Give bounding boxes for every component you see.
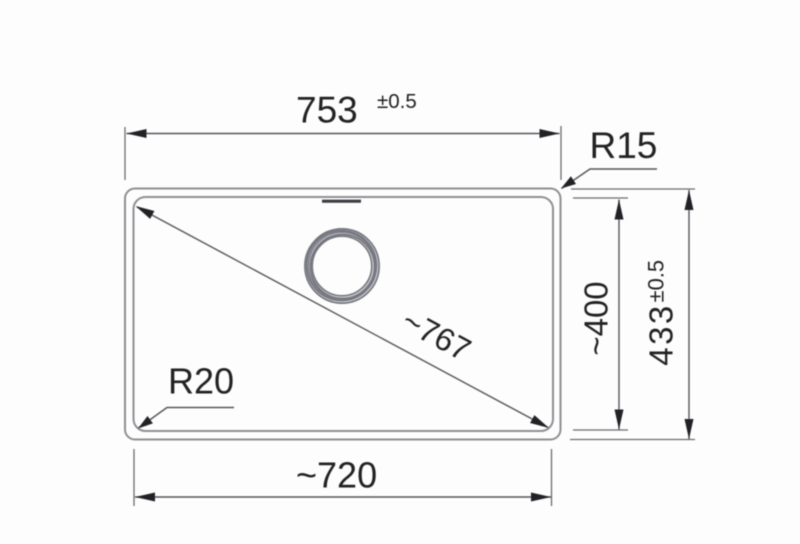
svg-text:433: 433 xyxy=(643,303,680,366)
svg-text:~767: ~767 xyxy=(396,302,477,368)
svg-text:~400: ~400 xyxy=(578,281,615,355)
svg-text:R20: R20 xyxy=(168,361,234,402)
svg-text:±0.5: ±0.5 xyxy=(644,260,669,303)
svg-text:±0.5: ±0.5 xyxy=(377,90,417,113)
svg-text:R15: R15 xyxy=(590,125,658,166)
svg-text:753: 753 xyxy=(296,90,358,131)
svg-text:~720: ~720 xyxy=(296,455,377,496)
